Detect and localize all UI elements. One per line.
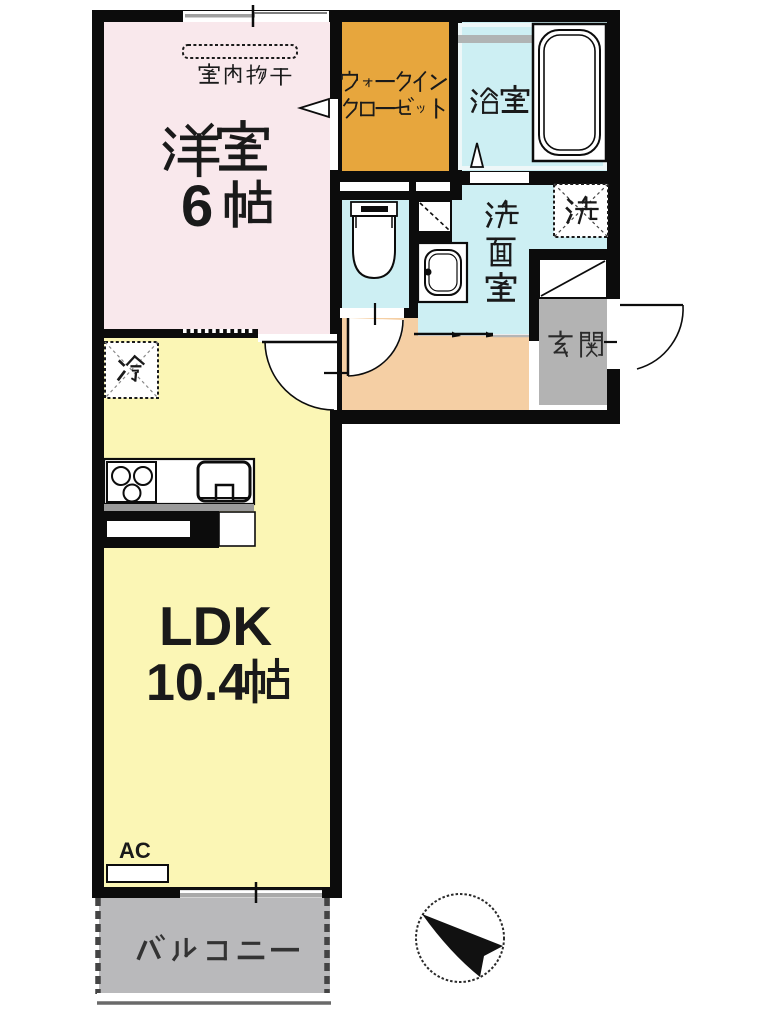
svg-text:AC: AC xyxy=(119,838,151,863)
svg-text:LDK: LDK xyxy=(159,595,272,657)
svg-text:6: 6 xyxy=(181,174,213,239)
svg-text:10.4: 10.4 xyxy=(146,654,247,712)
